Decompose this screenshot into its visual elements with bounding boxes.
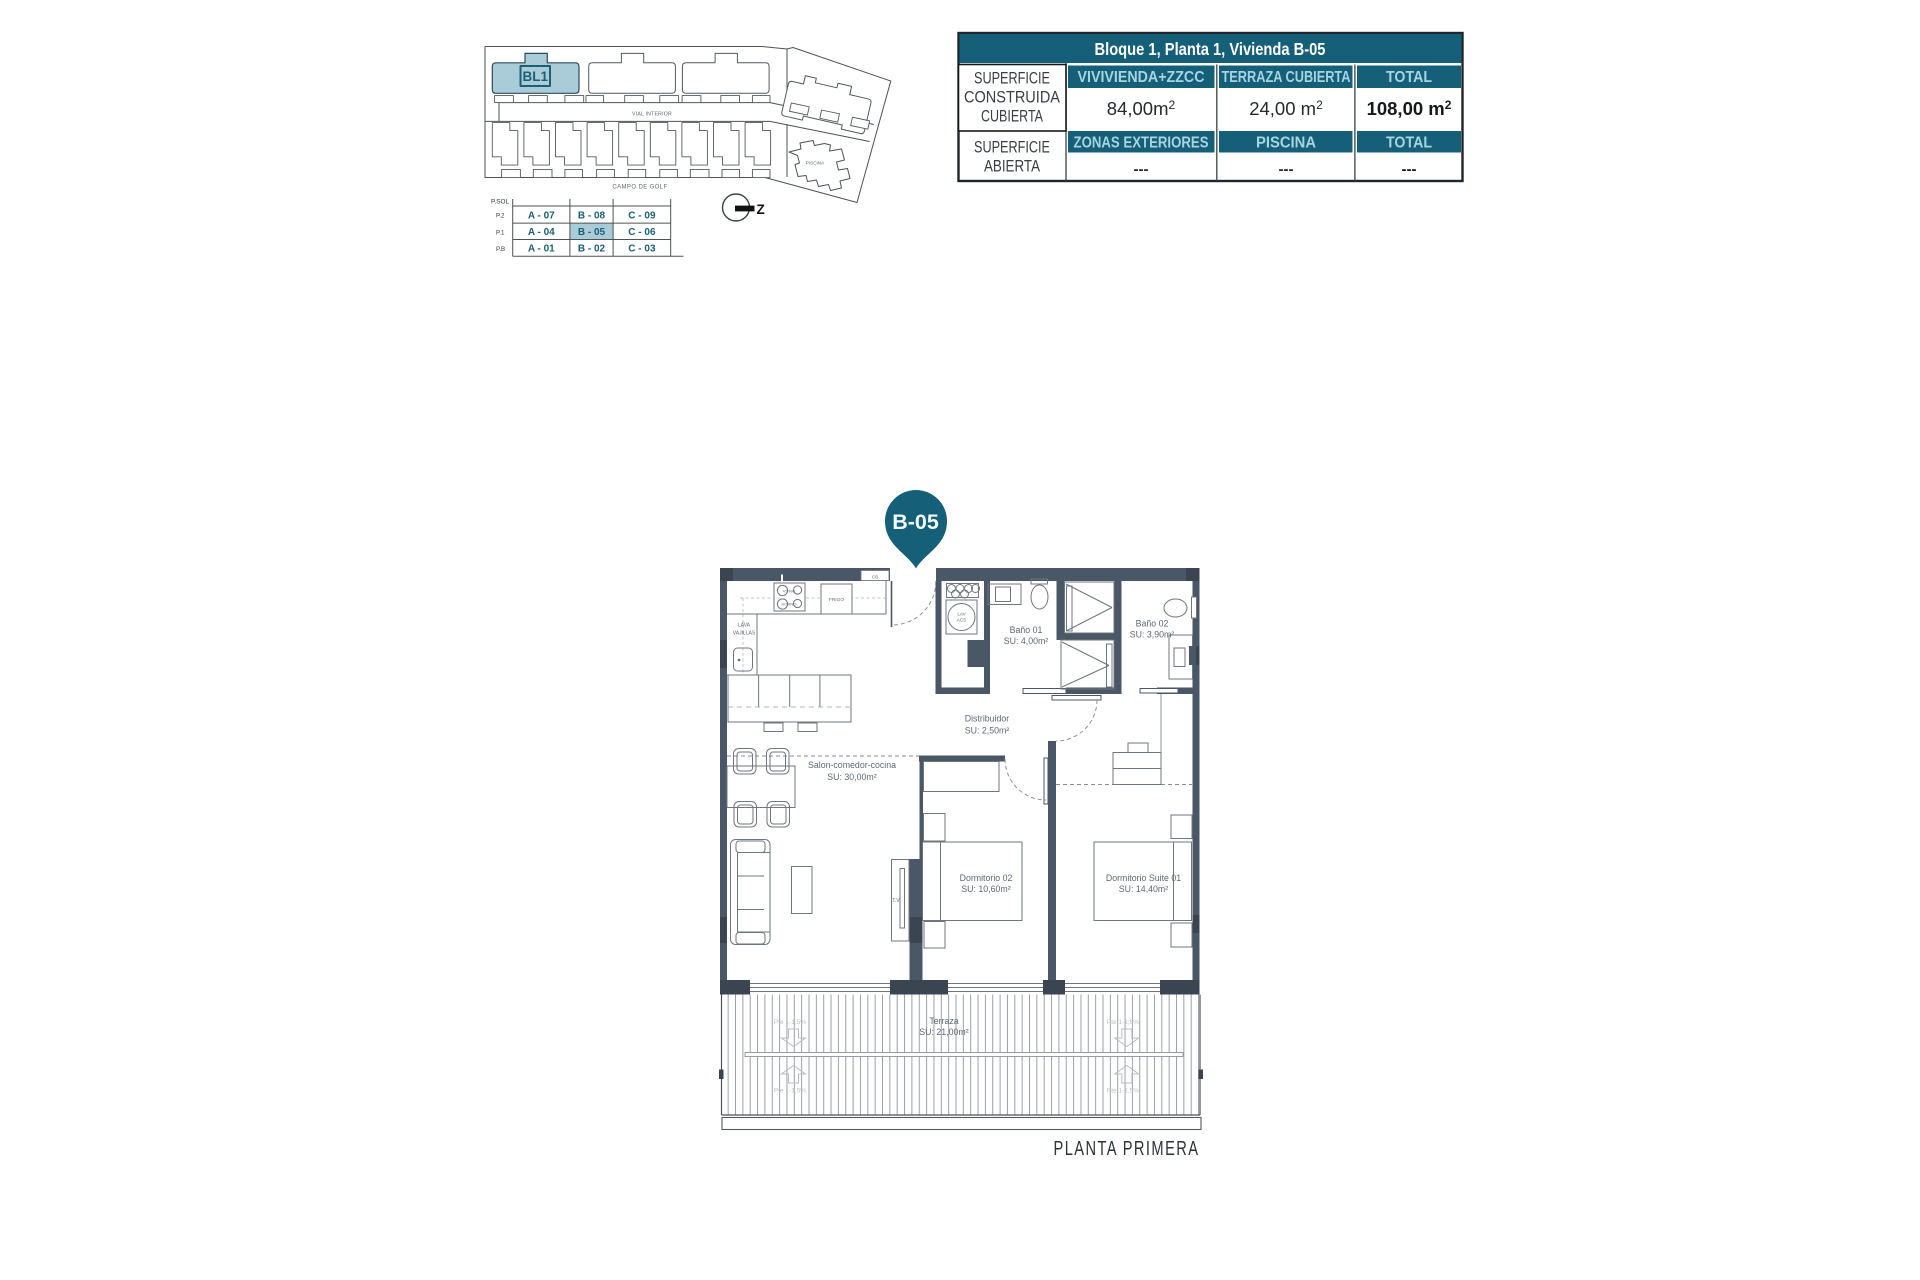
svg-text:A - 01: A - 01	[528, 244, 555, 255]
svg-text:SU: 10,60m²: SU: 10,60m²	[961, 884, 1010, 894]
svg-text:T.V: T.V	[892, 898, 900, 904]
svg-text:B - 02: B - 02	[578, 244, 606, 255]
svg-text:84,00m2: 84,00m2	[1107, 98, 1176, 119]
svg-text:HORNO: HORNO	[782, 602, 797, 607]
svg-text:CUBIERTA: CUBIERTA	[981, 108, 1043, 126]
svg-text:B - 05: B - 05	[578, 227, 606, 238]
svg-text:CONSTRUIDA: CONSTRUIDA	[964, 89, 1060, 107]
svg-text:TOTAL: TOTAL	[1386, 69, 1432, 86]
svg-text:CAMPO DE GOLF: CAMPO DE GOLF	[612, 185, 667, 191]
svg-text:P.B: P.B	[496, 246, 505, 253]
svg-text:VIAL INTERIOR: VIAL INTERIOR	[632, 112, 672, 118]
svg-text:Pte 1-1,5%: Pte 1-1,5%	[1107, 1019, 1139, 1026]
svg-text:PLANTA PRIMERA: PLANTA PRIMERA	[1054, 1137, 1200, 1160]
svg-text:Pte 1-1,5%: Pte 1-1,5%	[1107, 1088, 1139, 1095]
svg-text:SU: 21,00m²: SU: 21,00m²	[919, 1027, 968, 1037]
svg-text:Baño 02: Baño 02	[1136, 619, 1169, 629]
svg-text:SU: 4,00m²: SU: 4,00m²	[1004, 636, 1049, 646]
svg-text:Baño 01: Baño 01	[1010, 625, 1043, 635]
svg-text:B-05: B-05	[892, 510, 939, 534]
svg-text:FRIGO: FRIGO	[829, 597, 844, 603]
svg-text:P.1: P.1	[496, 229, 505, 236]
svg-text:SU: 3,90m²: SU: 3,90m²	[1130, 630, 1175, 640]
svg-text:SU: 30,00m²: SU: 30,00m²	[827, 772, 876, 782]
svg-text:Dormitorio 02: Dormitorio 02	[960, 873, 1013, 883]
svg-text:SU: 14,40m²: SU: 14,40m²	[1119, 884, 1168, 894]
svg-text:CB: CB	[872, 575, 878, 580]
svg-text:Z: Z	[757, 202, 765, 217]
svg-text:ACS: ACS	[957, 618, 966, 623]
svg-text:SUPERFICIE: SUPERFICIE	[974, 70, 1050, 88]
svg-text:TERRAZA CUBIERTA: TERRAZA CUBIERTA	[1222, 69, 1351, 86]
svg-text:Distribuidor: Distribuidor	[965, 714, 1010, 724]
svg-text:C - 09: C - 09	[628, 210, 656, 221]
svg-text:PISCINA: PISCINA	[1256, 134, 1316, 151]
svg-text:A - 07: A - 07	[528, 210, 555, 221]
svg-text:Salon-comedor-cocina: Salon-comedor-cocina	[808, 760, 896, 770]
svg-text:LAV: LAV	[957, 612, 966, 617]
svg-text:TOTAL: TOTAL	[1386, 134, 1432, 151]
svg-text:A - 04: A - 04	[528, 227, 555, 238]
svg-text:24,00 m2: 24,00 m2	[1249, 98, 1323, 119]
svg-text:VAJILLAS: VAJILLAS	[733, 631, 756, 637]
svg-text:Pte 1-1,5%: Pte 1-1,5%	[774, 1019, 806, 1026]
svg-text:SU: 2,50m²: SU: 2,50m²	[965, 726, 1010, 736]
svg-text:Terraza: Terraza	[929, 1016, 958, 1026]
svg-text:Pte 1-1,5%: Pte 1-1,5%	[774, 1088, 806, 1095]
svg-text:VITRO: VITRO	[783, 589, 795, 594]
svg-text:P.2: P.2	[496, 213, 505, 220]
svg-text:BL1: BL1	[523, 69, 549, 84]
svg-text:VIVIVIENDA+ZZCC: VIVIVIENDA+ZZCC	[1078, 69, 1205, 86]
svg-text:---: ---	[1279, 161, 1294, 178]
svg-text:Bloque 1, Planta 1, Vivienda B: Bloque 1, Planta 1, Vivienda B-05	[1095, 39, 1326, 59]
svg-text:---: ---	[1134, 161, 1149, 178]
svg-text:ABIERTA: ABIERTA	[984, 158, 1040, 176]
svg-text:108,00 m2: 108,00 m2	[1367, 98, 1452, 119]
svg-text:ZONAS EXTERIORES: ZONAS EXTERIORES	[1074, 134, 1209, 151]
svg-text:---: ---	[1402, 161, 1417, 178]
svg-text:SUPERFICIE: SUPERFICIE	[974, 139, 1050, 157]
svg-text:C - 03: C - 03	[628, 244, 656, 255]
svg-text:PISCINA: PISCINA	[806, 161, 825, 166]
svg-text:C - 06: C - 06	[628, 227, 656, 238]
svg-text:Dormitorio Suite 01: Dormitorio Suite 01	[1106, 873, 1181, 883]
svg-text:LAVA: LAVA	[738, 623, 751, 629]
svg-text:B - 08: B - 08	[578, 210, 606, 221]
svg-text:P.SOL: P.SOL	[491, 199, 509, 206]
